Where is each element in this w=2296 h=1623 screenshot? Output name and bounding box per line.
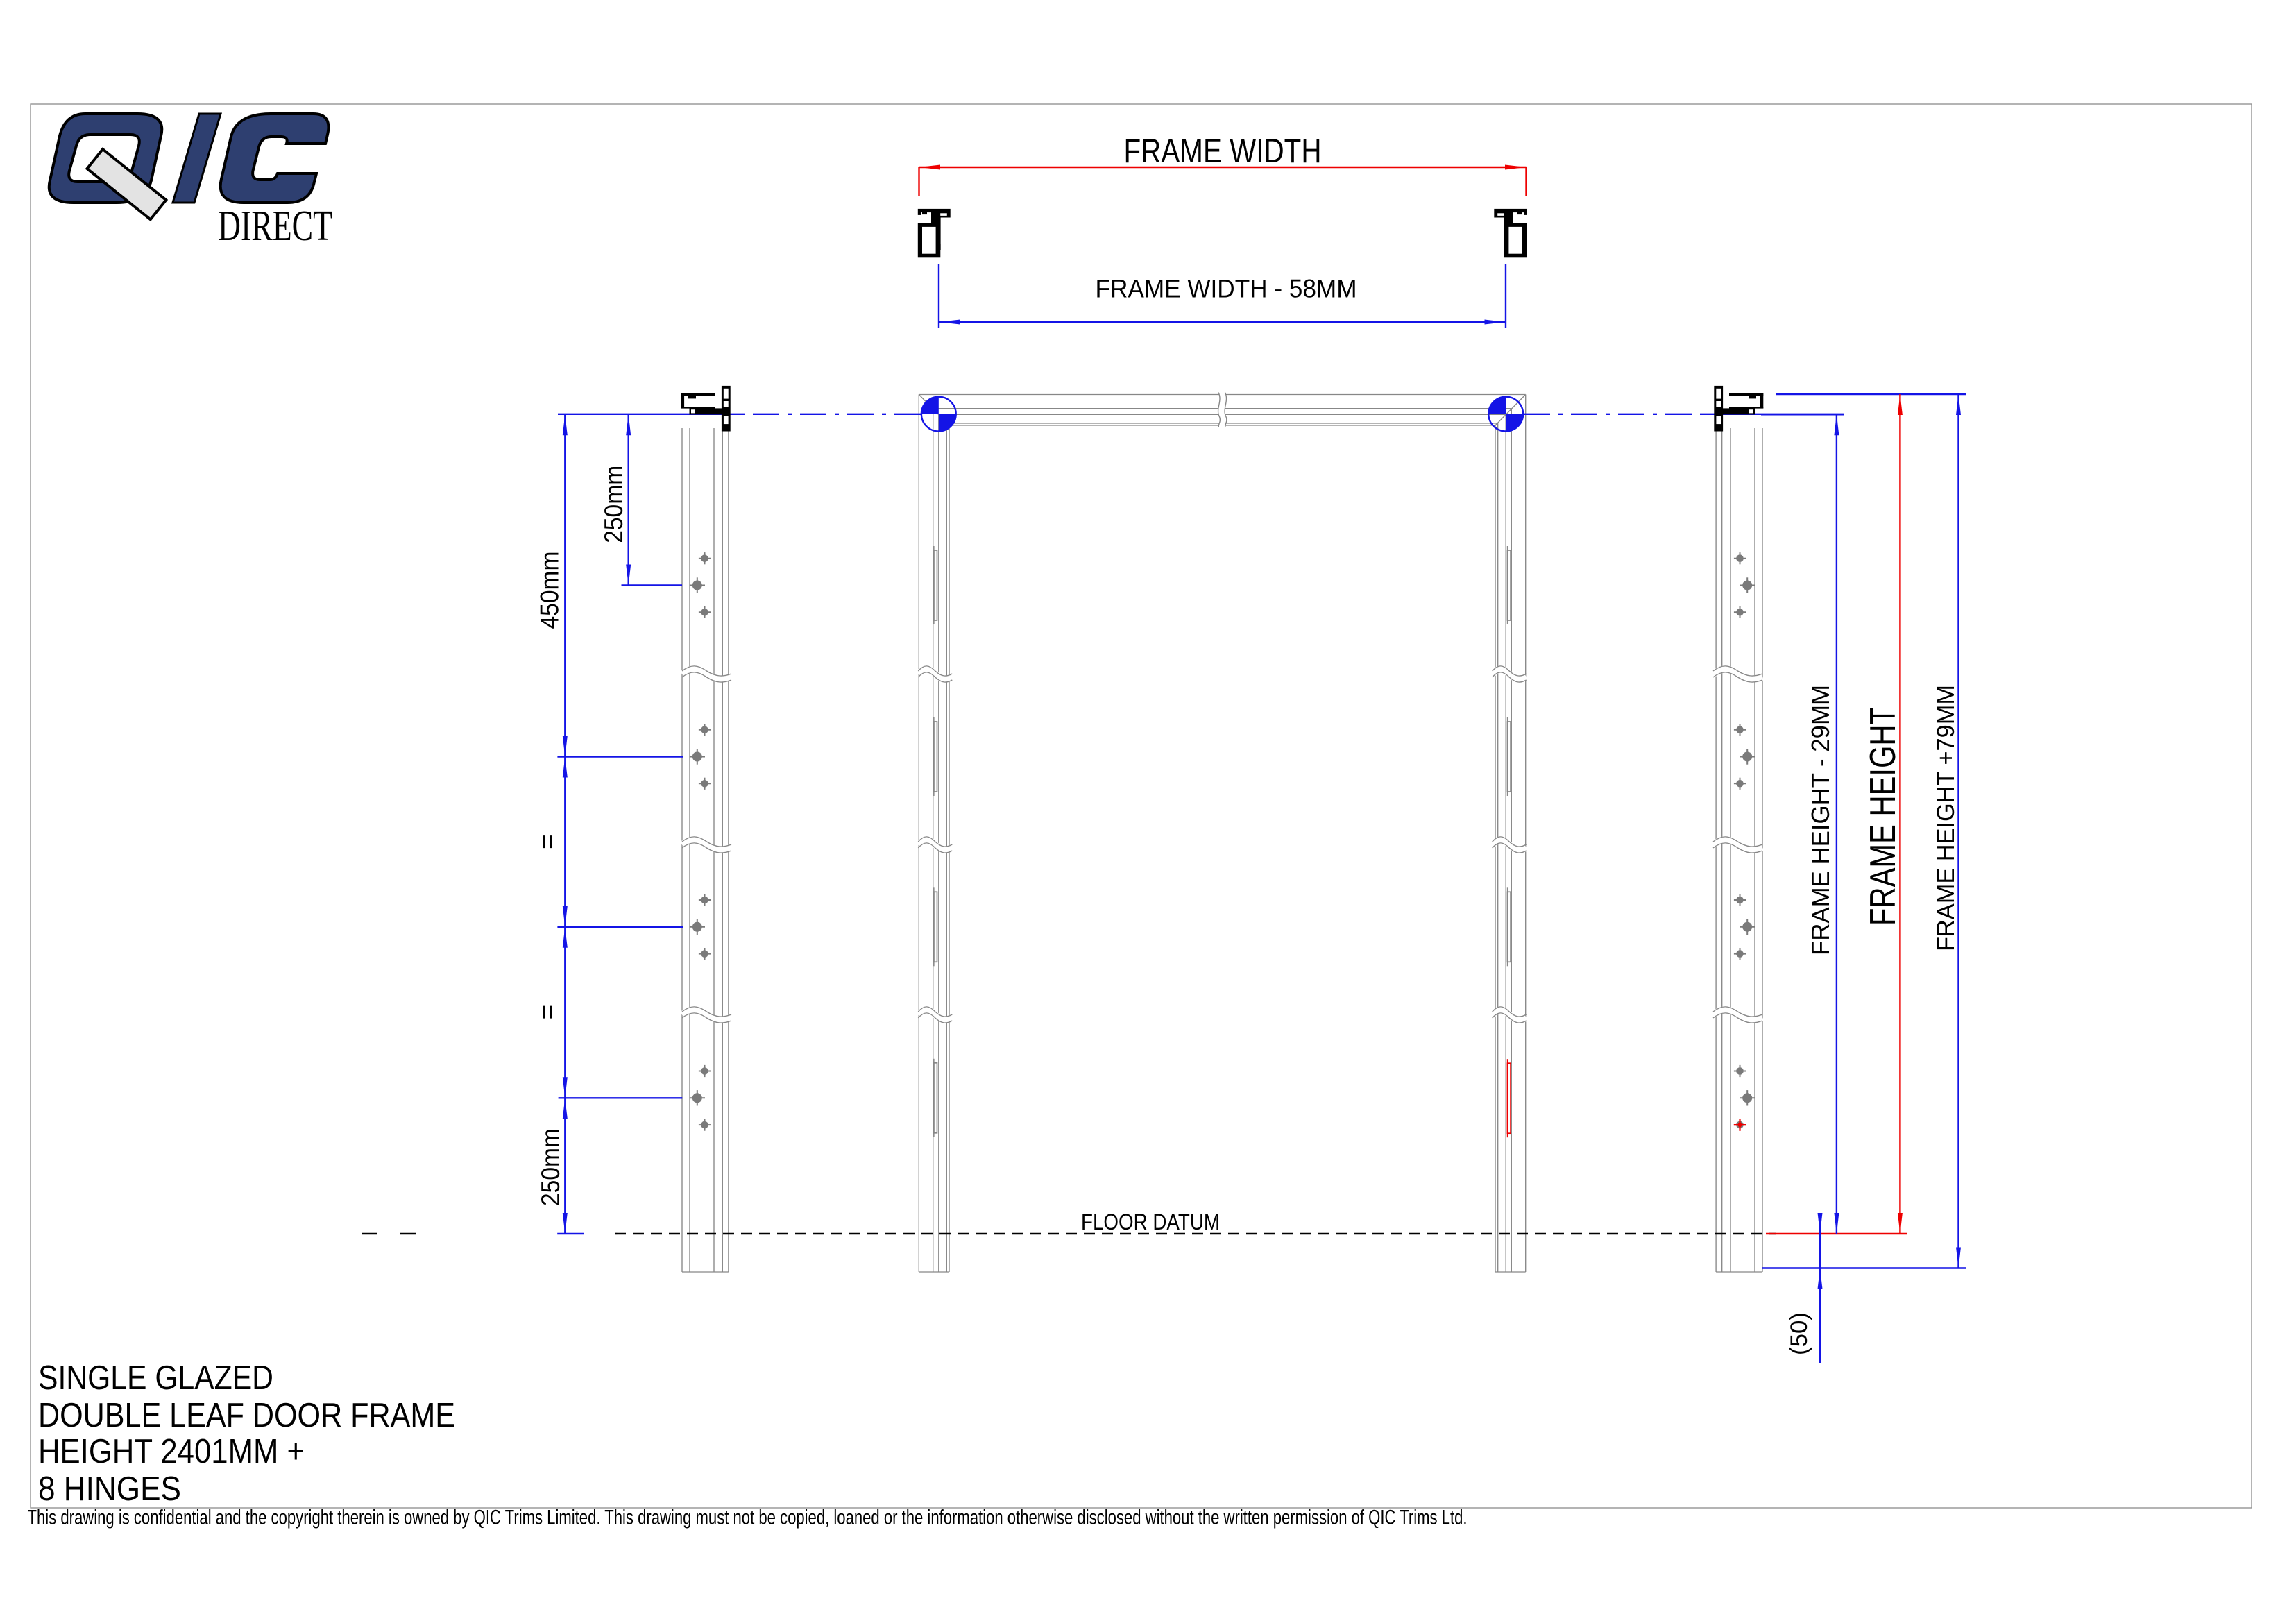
svg-text:FRAME HEIGHT +79MM: FRAME HEIGHT +79MM [1932,685,1959,951]
svg-text:250mm: 250mm [536,1128,565,1206]
svg-text:FRAME HEIGHT: FRAME HEIGHT [1863,707,1903,926]
svg-text:HEIGHT 2401MM +: HEIGHT 2401MM + [38,1433,305,1470]
svg-text:=: = [533,834,561,849]
svg-text:450mm: 450mm [536,552,564,629]
svg-text:8 HINGES: 8 HINGES [38,1470,181,1508]
svg-text:(50): (50) [1786,1312,1812,1355]
svg-text:DIRECT: DIRECT [218,203,332,250]
svg-text:FRAME WIDTH - 58MM: FRAME WIDTH - 58MM [1096,275,1357,303]
svg-text:250mm: 250mm [599,466,628,543]
svg-text:This drawing is confidential a: This drawing is confidential and the cop… [28,1506,1468,1529]
svg-text:FLOOR DATUM: FLOOR DATUM [1081,1209,1220,1234]
svg-text:=: = [533,1005,561,1020]
svg-text:FRAME WIDTH: FRAME WIDTH [1124,133,1322,170]
svg-text:SINGLE GLAZED: SINGLE GLAZED [38,1359,273,1397]
svg-text:DOUBLE LEAF DOOR FRAME: DOUBLE LEAF DOOR FRAME [38,1397,455,1434]
svg-text:FRAME HEIGHT - 29MM: FRAME HEIGHT - 29MM [1806,685,1835,955]
